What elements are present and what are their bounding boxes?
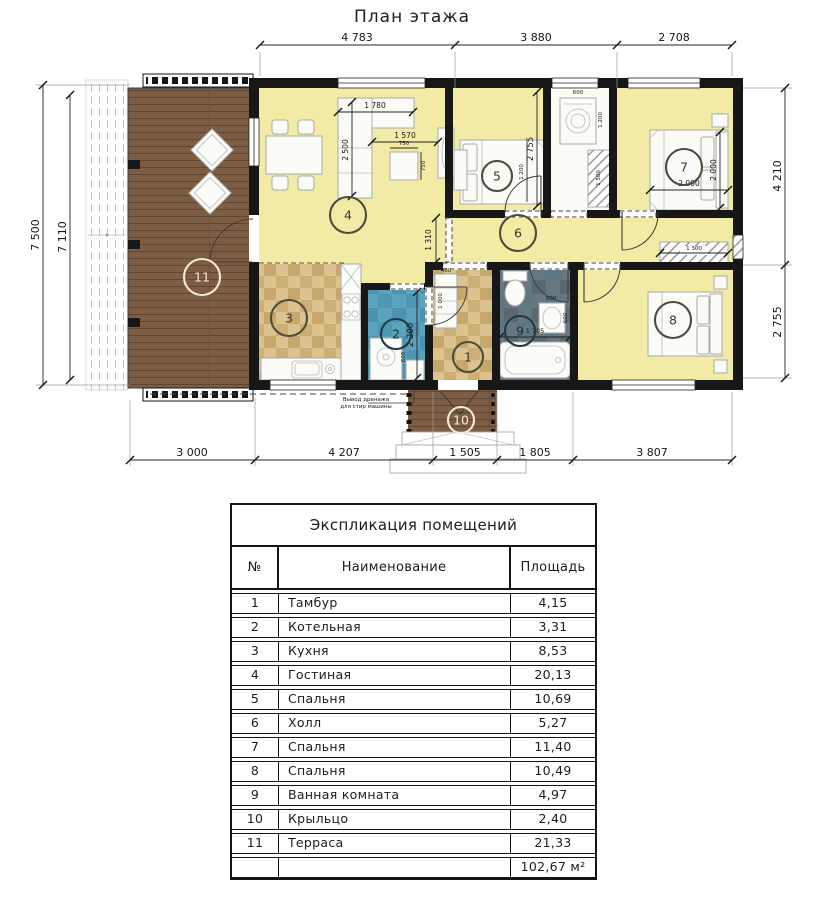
row-area: 2,40 <box>511 810 595 829</box>
row-num: 9 <box>232 786 279 805</box>
dim-label: 2 755 <box>526 137 536 161</box>
room-number: 10 <box>453 413 469 428</box>
pillow <box>697 296 709 324</box>
row-name: Крыльцо <box>279 810 511 829</box>
table-row: 2Котельная3,31 <box>232 617 595 638</box>
row-num: 8 <box>232 762 279 781</box>
floor-plan-drawing: План этажа <box>0 0 825 500</box>
chair <box>272 176 288 190</box>
chair <box>272 120 288 134</box>
plan-title: План этажа <box>354 7 470 27</box>
dim-label: 1 500 <box>596 170 602 186</box>
pillow <box>697 326 709 354</box>
dim-label: 1 310 <box>424 229 433 251</box>
nightstand <box>712 114 728 127</box>
wall-vent <box>733 235 743 259</box>
dim-label: 1 200 <box>519 164 525 180</box>
row-name: Спальня <box>279 690 511 709</box>
nightstand <box>454 150 467 190</box>
dimensions-right: 4 210 2 755 <box>743 84 792 382</box>
table-row: 6Холл5,27 <box>232 713 595 734</box>
table-row: 8Спальня10,49 <box>232 761 595 782</box>
dim-label: 4 210 <box>771 160 784 192</box>
row-num <box>232 858 279 877</box>
dining-table <box>266 136 322 174</box>
row-num: 3 <box>232 642 279 661</box>
table-row: 11Терраса21,33 <box>232 833 595 854</box>
porch-step <box>390 459 526 473</box>
table-row: 7Спальня11,40 <box>232 737 595 758</box>
column-header-num: № <box>232 547 279 588</box>
room-number: 8 <box>669 313 677 328</box>
dim-label: 1 200 <box>598 112 604 128</box>
row-name: Гостиная <box>279 666 511 685</box>
dim-label: 1 000 <box>438 293 444 309</box>
dim-label: 500 <box>546 296 557 302</box>
dim-label: 1 570 <box>394 131 416 140</box>
row-area: 21,33 <box>511 834 595 853</box>
row-num: 4 <box>232 666 279 685</box>
row-num: 1 <box>232 594 279 613</box>
room-number: 1 <box>464 350 472 365</box>
room-number: 3 <box>285 311 293 326</box>
dim-label: 4 207 <box>328 446 360 459</box>
row-area: 5,27 <box>511 714 595 733</box>
row-name: Ванная комната <box>279 786 511 805</box>
nightstand <box>714 276 727 289</box>
dim-label: 600 <box>573 90 584 96</box>
washer-drain-note: Вывод дренажа для стир машины <box>340 390 414 410</box>
total-area-row: 102,67 м² <box>232 857 595 878</box>
dim-label: 1 780 <box>364 101 386 110</box>
row-name: Спальня <box>279 762 511 781</box>
row-area: 11,40 <box>511 738 595 757</box>
room-number: 2 <box>392 327 400 342</box>
dim-label: 7 110 <box>56 221 69 253</box>
kitchen-counter <box>341 264 361 380</box>
coffee-table <box>390 152 418 180</box>
row-area: 3,31 <box>511 618 595 637</box>
room-schedule-table: Экспликация помещений № Наименование Пло… <box>230 503 597 880</box>
dim-label: 2 755 <box>771 306 784 338</box>
room-number: 7 <box>680 160 688 175</box>
dim-label: 4 783 <box>341 31 373 44</box>
row-num: 7 <box>232 738 279 757</box>
dim-label: 1 300 <box>686 246 702 252</box>
row-num: 10 <box>232 810 279 829</box>
row-area: 10,69 <box>511 690 595 709</box>
table-row: 3Кухня8,53 <box>232 641 595 662</box>
table-row: 10Крыльцо2,40 <box>232 809 595 830</box>
note-line: Вывод дренажа <box>343 397 389 403</box>
dim-label: 750 <box>421 160 427 171</box>
shelf <box>406 360 424 380</box>
row-name: Спальня <box>279 738 511 757</box>
chair <box>298 176 314 190</box>
dim-label: 600 <box>563 312 569 323</box>
row-name: Холл <box>279 714 511 733</box>
row-num: 11 <box>232 834 279 853</box>
dim-label: 750 <box>573 354 579 365</box>
total-area-value: 102,67 м² <box>511 858 595 877</box>
dim-label: 3 807 <box>636 446 668 459</box>
row-name: Котельная <box>279 618 511 637</box>
row-num: 5 <box>232 690 279 709</box>
toilet <box>505 280 525 306</box>
column-header-area: Площадь <box>511 547 595 588</box>
row-name: Терраса <box>279 834 511 853</box>
nightstand <box>714 360 727 373</box>
row-area: 10,49 <box>511 762 595 781</box>
dim-label: 1 505 <box>449 446 481 459</box>
dim-label: 1 805 <box>519 446 551 459</box>
dim-label: 2 708 <box>658 31 690 44</box>
washing-machine <box>560 98 596 144</box>
floor-plan-sheet: План этажа <box>0 0 825 900</box>
dim-label: 400 <box>441 268 452 274</box>
dim-label: 3 880 <box>520 31 552 44</box>
room-number: 5 <box>493 169 501 184</box>
terrace-deck <box>128 88 253 388</box>
room-number: 6 <box>514 226 522 241</box>
row-name <box>279 858 511 877</box>
room-number: 9 <box>516 324 524 339</box>
dim-label: 2 000 <box>709 159 718 181</box>
room-number: 11 <box>194 270 210 285</box>
headboard <box>710 294 722 354</box>
row-area: 20,13 <box>511 666 595 685</box>
row-num: 2 <box>232 618 279 637</box>
table-row: 4Гостиная20,13 <box>232 665 595 686</box>
row-area: 4,97 <box>511 786 595 805</box>
dim-label: 750 <box>399 141 410 147</box>
row-area: 4,15 <box>511 594 595 613</box>
schedule-title: Экспликация помещений <box>232 505 595 547</box>
dim-label: 3 000 <box>176 446 208 459</box>
row-area: 8,53 <box>511 642 595 661</box>
row-name: Кухня <box>279 642 511 661</box>
front-door-opening <box>438 380 478 390</box>
dim-label: 600 <box>401 351 407 362</box>
row-num: 6 <box>232 714 279 733</box>
terrace-door-opening <box>249 215 259 262</box>
chair <box>298 120 314 134</box>
column-header-name: Наименование <box>279 547 511 588</box>
note-line: для стир машины <box>340 404 391 410</box>
schedule-header-row: № Наименование Площадь <box>232 547 595 590</box>
room-number: 4 <box>344 208 352 223</box>
table-row: 9Ванная комната4,97 <box>232 785 595 806</box>
dim-label: 2 500 <box>341 139 350 161</box>
row-name: Тамбур <box>279 594 511 613</box>
table-row: 1Тамбур4,15 <box>232 593 595 614</box>
dim-label: 7 500 <box>29 219 42 251</box>
table-row: 5Спальня10,69 <box>232 689 595 710</box>
